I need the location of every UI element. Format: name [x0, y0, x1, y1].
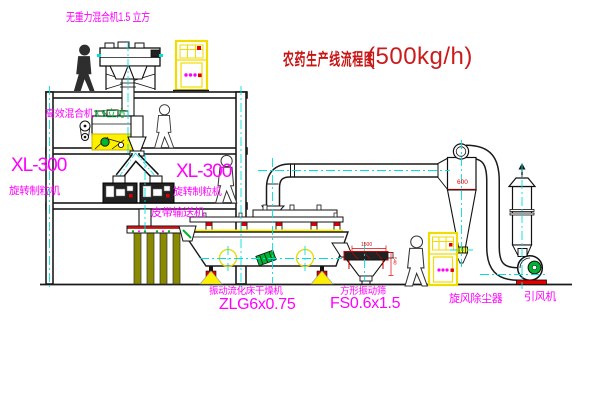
exhaust-duct	[262, 164, 438, 213]
panel-button	[441, 268, 444, 271]
person-floor2	[155, 105, 174, 148]
granulator-right-model: XL-300	[176, 162, 231, 181]
mixer-name: 高效混合机	[45, 109, 94, 120]
panel-button	[193, 73, 196, 76]
control-cabinet-top	[173, 41, 209, 91]
dryer-foot-right	[311, 266, 333, 284]
person-roof	[74, 45, 95, 91]
diagram-title-text: 农药生产线流程图	[283, 52, 375, 69]
belt-conveyor-label: 皮带输送机	[151, 208, 205, 219]
gravity-mixer-label-text: 无重力混合机1.5 立方	[66, 13, 150, 25]
screen-length-dim: 1500	[361, 243, 372, 248]
process-flow-diagram: 无重力混合机1.5 立方 农药生产线流程图 (500kg/h) 高效混合机3.5…	[0, 0, 600, 403]
diagram-capacity: (500kg/h)	[367, 45, 473, 69]
panel-button	[189, 73, 192, 76]
dryer-model-label: ZLG6x0.75	[219, 297, 295, 313]
screen-height-dim: 540	[392, 257, 397, 265]
indicator-light	[197, 46, 201, 50]
y-chute	[119, 151, 156, 177]
indicator-light	[451, 269, 454, 272]
fan-base	[517, 280, 547, 285]
granulator-left-model: XL-300	[11, 156, 66, 175]
mixer-size: 3.5立方	[94, 109, 126, 120]
granulator-left-name: 旋转制粒机	[9, 186, 60, 197]
cyclone-label: 旋风除尘器	[449, 294, 503, 305]
screen-model-label: FS0.6x1.5	[330, 296, 400, 312]
granulator-left	[103, 176, 137, 203]
vibrating-screen	[344, 246, 394, 285]
person-ground	[405, 236, 427, 286]
high-efficiency-mixer-label: 高效混合机3.5立方	[45, 110, 126, 120]
panel-button	[184, 73, 187, 76]
panel-button	[437, 268, 440, 271]
mixer-motor	[151, 50, 160, 57]
gravity-mixer-label: 无重力混合机1.5 立方	[66, 13, 174, 25]
cyclone-diameter-dim: 600	[457, 180, 468, 187]
gravity-free-mixer	[97, 42, 163, 116]
fan-label: 引风机	[524, 292, 556, 303]
indicator-light	[449, 243, 453, 247]
dryer-foot-left	[200, 266, 222, 284]
granulator-right-name: 旋转制粒机	[173, 188, 222, 198]
fluid-bed-dryer	[179, 205, 353, 284]
panel-button	[445, 268, 448, 271]
indicator-light	[198, 74, 202, 78]
control-cabinet-right	[429, 233, 457, 285]
